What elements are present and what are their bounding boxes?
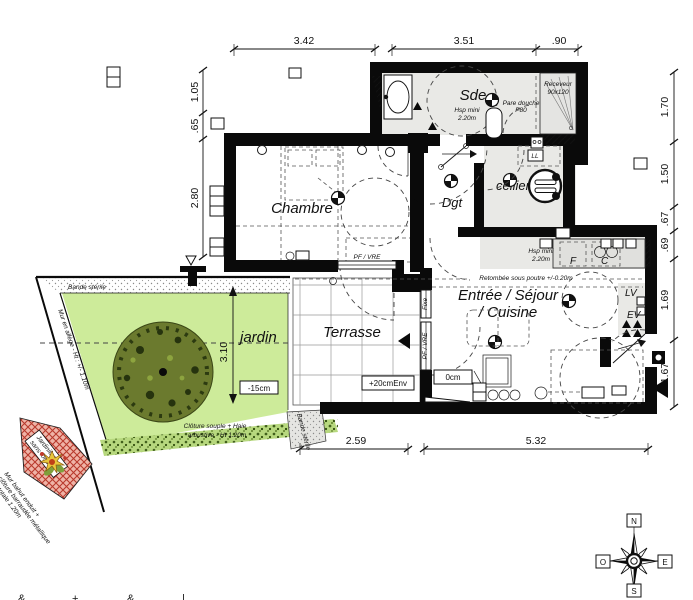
turning-circle-bedroom xyxy=(341,178,409,246)
svg-text:.65: .65 xyxy=(189,119,201,134)
switch-icon xyxy=(286,252,294,260)
socket-icon xyxy=(637,297,645,305)
water-heater-icon xyxy=(529,170,561,202)
dimension-left: 1.05 .65 2.80 xyxy=(189,67,207,260)
bedroom-door-swing xyxy=(378,146,408,176)
kitchen-height-note-2: 2.20m xyxy=(531,256,551,263)
sink-tag: EV xyxy=(627,310,642,321)
terrace-level-tag: +20cmEnv xyxy=(369,379,407,388)
dimension-top: 3.42 3.51 .90 xyxy=(230,35,582,56)
svg-text:&: & xyxy=(18,593,26,600)
bathroom-door-leaf xyxy=(441,146,466,167)
tree xyxy=(113,322,213,422)
spotlight-icon xyxy=(563,295,576,308)
bande-sterile-right: Bande stérile xyxy=(287,410,326,452)
cut-off-text-bottom: &+&| xyxy=(18,593,185,600)
bathroom-label: Sde xyxy=(460,87,487,104)
hob-tag: C xyxy=(601,256,609,267)
floor-plan-page: Bande stérile Mur en allège - Ht : +/- 1… xyxy=(0,0,693,600)
spotlight-icon xyxy=(489,336,502,349)
compass-south-label: S xyxy=(631,587,636,596)
wall-shutter-boxes xyxy=(210,186,224,256)
hallway-label: Dgt xyxy=(442,195,464,210)
svg-text:1.70: 1.70 xyxy=(659,97,671,118)
compass-north-label: N xyxy=(631,517,637,526)
ceiling-light-icon xyxy=(386,148,395,157)
svg-text:|: | xyxy=(182,593,185,600)
bedroom-label: Chambre xyxy=(271,200,333,217)
socket-icon xyxy=(296,251,309,260)
hallway-door-swing-2 xyxy=(430,238,470,280)
bathroom-height-note-1: Hsp mini xyxy=(454,107,480,114)
insulation-hatch-3 xyxy=(542,134,575,144)
svg-text:3.10: 3.10 xyxy=(218,342,230,363)
dimension-bottom: 2.59 5.32 xyxy=(296,435,652,455)
living-door-swing xyxy=(432,327,480,375)
garden-level-tag: -15cm xyxy=(248,384,271,393)
svg-text:1.67: 1.67 xyxy=(659,363,671,384)
svg-text:.69: .69 xyxy=(659,238,671,253)
ceiling-light-icon xyxy=(358,146,367,155)
shower-tray-label-2: 90x120 xyxy=(547,89,569,96)
threshold-ramp xyxy=(425,397,470,402)
garden-label: jardin xyxy=(238,329,277,346)
rug-outline xyxy=(483,355,511,387)
compass-west-label: O xyxy=(600,558,606,567)
socket-icon xyxy=(626,239,636,248)
socket-icon xyxy=(540,239,552,248)
compass-rose: N O E S xyxy=(596,514,672,597)
fixed-window-label: Fixe xyxy=(422,297,429,310)
spotlight-icon xyxy=(445,175,458,188)
living-label-1: Entrée / Séjour xyxy=(458,287,559,304)
living-window-label: PF / VRE xyxy=(422,332,429,360)
entry-door-leaf xyxy=(613,334,645,363)
beam-note: Retombée sous poutre +/-0.20m xyxy=(479,275,573,282)
svg-text:1.69: 1.69 xyxy=(659,290,671,311)
toilet-icon xyxy=(486,108,502,138)
terrace-label: Terrasse xyxy=(323,324,381,341)
spotlight-icon xyxy=(332,192,345,205)
hedge-caption-1: Clôture souple + Haie xyxy=(184,423,247,430)
svg-text:1.05: 1.05 xyxy=(189,82,201,103)
floor-plan-drawing: Bande stérile Mur en allège - Ht : +/- 1… xyxy=(0,0,693,600)
svg-text:3.42: 3.42 xyxy=(294,35,315,47)
socket-icon xyxy=(601,239,611,248)
oven-tag: F xyxy=(570,256,577,267)
bottom-wall-fixtures xyxy=(473,383,626,401)
svg-text:3.51: 3.51 xyxy=(454,35,475,47)
svg-text:2.80: 2.80 xyxy=(189,188,201,209)
washbasin-icon xyxy=(387,81,409,113)
garden-area: Bande stérile Mur en allège - Ht : +/- 1… xyxy=(0,277,338,550)
svg-text:5.32: 5.32 xyxy=(526,435,547,447)
svg-text:.90: .90 xyxy=(552,35,567,47)
washer-tag: LL xyxy=(531,153,539,160)
bande-sterile-top-label: Bande stérile xyxy=(68,284,106,291)
dishwasher-tag: LV xyxy=(625,288,638,299)
svg-text:.67: .67 xyxy=(659,212,671,227)
kitchen-height-note-1: Hsp mini xyxy=(528,248,554,255)
shower-screen-label-2: P80 xyxy=(515,107,527,114)
ceiling-light-icon xyxy=(258,146,267,155)
zero-level-tag: 0cm xyxy=(445,373,460,382)
bedroom-window-label: PF / VRE xyxy=(354,254,382,261)
spotlight-icon xyxy=(486,94,499,107)
svg-text:1.50: 1.50 xyxy=(659,164,671,185)
tree-trunk-dot xyxy=(159,368,167,376)
svg-text:+: + xyxy=(72,593,78,600)
bathroom-height-note-2: 2.20m xyxy=(457,115,477,122)
svg-text:2.59: 2.59 xyxy=(346,435,367,447)
shower-screen-label-1: Pare douche xyxy=(503,100,540,107)
socket-icon xyxy=(613,239,623,248)
svg-text:&: & xyxy=(127,593,135,600)
compass-east-label: E xyxy=(662,558,667,567)
shower-tray-label-1: Receveur xyxy=(544,81,573,88)
vent-icon xyxy=(556,228,570,238)
living-label-2: / Cuisine xyxy=(478,304,537,321)
hedge-caption-2: arbustive - Ht 1.20m xyxy=(188,432,247,439)
kitchen-counter: F C xyxy=(540,239,645,268)
